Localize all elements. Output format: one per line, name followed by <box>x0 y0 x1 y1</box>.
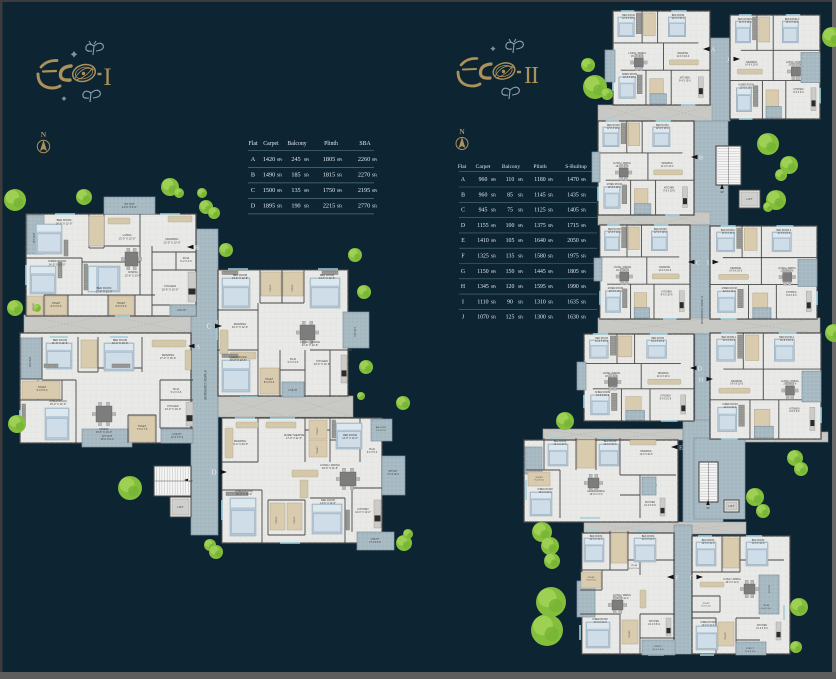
svg-text:9'-6 X 10'-6: 9'-6 X 10'-6 <box>661 295 673 297</box>
svg-text:12'-0" X 10'-0": 12'-0" X 10'-0" <box>165 407 181 411</box>
svg-text:M.BED ROOM: M.BED ROOM <box>592 619 607 621</box>
svg-text:17'-6 X 5'-6: 17'-6 X 5'-6 <box>369 542 381 544</box>
svg-text:UP: UP <box>189 479 193 483</box>
svg-text:10'-6" X 10'-6": 10'-6" X 10'-6" <box>162 287 179 291</box>
svg-text:M.BED ROOM: M.BED ROOM <box>622 74 637 76</box>
svg-text:Carpet: Carpet <box>476 164 491 170</box>
svg-text:BALCONY: BALCONY <box>376 426 387 429</box>
svg-text:185: 185 <box>291 172 300 179</box>
svg-text:7'-0 X 12'-0: 7'-0 X 12'-0 <box>387 474 399 476</box>
svg-text:BED ROOM: BED ROOM <box>702 540 715 542</box>
svg-text:100: 100 <box>506 223 515 229</box>
svg-text:9'-6 X 10'-6: 9'-6 X 10'-6 <box>660 399 672 401</box>
svg-text:TOILET: TOILET <box>294 516 296 524</box>
svg-text:TOILET: TOILET <box>702 603 710 605</box>
svg-text:SFt: SFt <box>304 204 310 209</box>
svg-text:11'-6" X 12'-6": 11'-6" X 12'-6" <box>52 341 68 345</box>
svg-text:N: N <box>41 130 47 139</box>
svg-text:I: I <box>531 63 539 89</box>
svg-text:11'-6 X 5'-6: 11'-6 X 5'-6 <box>745 651 757 653</box>
svg-text:12'-0 X 10'-6: 12'-0 X 10'-6 <box>640 454 654 456</box>
svg-text:M.BED ROOM: M.BED ROOM <box>739 85 754 87</box>
svg-text:12'-0 X 10'-0: 12'-0 X 10'-0 <box>651 341 665 343</box>
svg-text:S-Builtup: S-Builtup <box>565 164 587 170</box>
svg-text:12'-6 X 10'-6: 12'-6 X 10'-6 <box>623 77 637 79</box>
svg-text:85: 85 <box>507 192 513 198</box>
svg-text:BED ROOM: BED ROOM <box>622 15 635 17</box>
svg-text:DRAWING: DRAWING <box>746 61 757 64</box>
svg-text:6'-0 X 5'-6: 6'-0 X 5'-6 <box>629 568 640 570</box>
svg-text:SFt: SFt <box>304 173 310 178</box>
svg-text:H: H <box>699 376 704 383</box>
svg-text:SFt: SFt <box>372 173 378 178</box>
svg-text:16'-0" X 12'-6": 16'-0" X 12'-6" <box>230 358 246 362</box>
svg-text:14'-6" X 12'-6": 14'-6" X 12'-6" <box>232 276 248 280</box>
svg-text:SIT OUT: SIT OUT <box>388 471 398 473</box>
svg-text:1420: 1420 <box>263 156 275 163</box>
svg-text:SFt: SFt <box>372 157 378 162</box>
svg-text:11'-6 X 10'-6: 11'-6 X 10'-6 <box>739 22 752 24</box>
svg-text:10'-6 X 10'-6: 10'-6 X 10'-6 <box>777 233 791 235</box>
svg-text:105: 105 <box>506 238 515 244</box>
svg-text:TOILET: TOILET <box>725 632 727 640</box>
svg-text:11'-0 X 10'-0: 11'-0 X 10'-0 <box>676 56 689 58</box>
svg-text:BED ROOM: BED ROOM <box>595 338 608 340</box>
svg-text:8'-6 X 5'-0: 8'-6 X 5'-0 <box>51 305 62 308</box>
svg-text:Flat: Flat <box>248 141 257 147</box>
svg-text:2270: 2270 <box>358 172 370 179</box>
svg-text:SIT OUT: SIT OUT <box>32 232 36 243</box>
svg-text:BED ROOM: BED ROOM <box>554 441 567 443</box>
svg-text:SFt: SFt <box>337 157 343 162</box>
svg-text:1595: 1595 <box>534 284 546 290</box>
svg-text:Balcony: Balcony <box>502 164 521 170</box>
svg-text:9'-0 X 4'-6: 9'-0 X 4'-6 <box>534 480 544 482</box>
svg-text:12'-6 X 10'-6: 12'-6 X 10'-6 <box>596 395 610 397</box>
svg-text:12'-0" X 12'-0": 12'-0" X 12'-0" <box>164 240 181 244</box>
svg-text:BED ROOM-1: BED ROOM-1 <box>721 230 736 232</box>
svg-text:M.BED ROOM: M.BED ROOM <box>722 288 737 290</box>
svg-text:1300: 1300 <box>534 315 546 321</box>
svg-text:10'-6 X 10'-6: 10'-6 X 10'-6 <box>786 22 800 24</box>
svg-text:12'-0 X 9'-6: 12'-0 X 9'-6 <box>644 505 656 507</box>
svg-text:SIT OUT: SIT OUT <box>28 356 32 367</box>
svg-text:960: 960 <box>479 177 488 183</box>
svg-text:KITCHEN: KITCHEN <box>660 396 670 398</box>
svg-text:8' WIDE CORRIDOR: 8' WIDE CORRIDOR <box>700 296 704 325</box>
svg-text:BED ROOM-1: BED ROOM-1 <box>738 19 753 21</box>
svg-text:12'-0 X 10'-6: 12'-0 X 10'-6 <box>604 444 618 446</box>
svg-text:BED ROOM: BED ROOM <box>642 536 655 538</box>
svg-text:PUJA: PUJA <box>631 564 637 567</box>
svg-text:G: G <box>690 574 695 581</box>
svg-text:10'-6 X 10'-6: 10'-6 X 10'-6 <box>780 340 794 342</box>
svg-text:UP: UP <box>720 191 724 194</box>
svg-text:SFt: SFt <box>277 173 283 178</box>
svg-text:KITCHEN: KITCHEN <box>649 621 659 623</box>
svg-text:135: 135 <box>291 187 300 194</box>
svg-text:SFt: SFt <box>337 173 343 178</box>
svg-text:M.BED ROOM: M.BED ROOM <box>595 392 610 394</box>
svg-text:12'-6 X 10'-6: 12'-6 X 10'-6 <box>609 291 623 293</box>
svg-text:SIT OUT: SIT OUT <box>769 584 771 593</box>
svg-text:DRAWING: DRAWING <box>677 52 688 55</box>
svg-text:A: A <box>251 156 256 163</box>
svg-text:1490: 1490 <box>263 172 275 179</box>
svg-text:BED ROOM-2: BED ROOM-2 <box>785 19 800 21</box>
svg-text:SIT OUT: SIT OUT <box>354 327 357 337</box>
svg-text:BED ROOM: BED ROOM <box>651 338 664 340</box>
svg-text:2050: 2050 <box>567 238 579 244</box>
svg-text:Flat: Flat <box>458 164 467 170</box>
svg-text:12'-0 X 10'-0: 12'-0 X 10'-0 <box>607 128 621 130</box>
svg-text:SFt: SFt <box>372 188 378 193</box>
svg-text:12'-0 X 10'-0: 12'-0 X 10'-0 <box>608 232 622 234</box>
svg-text:DRAWING: DRAWING <box>658 372 669 375</box>
svg-text:8'-6 X 5'-0: 8'-6 X 5'-0 <box>116 305 127 308</box>
svg-text:9'-0 X 5'-6: 9'-0 X 5'-6 <box>586 580 596 582</box>
svg-text:M.BED ROOM: M.BED ROOM <box>607 184 622 186</box>
svg-text:TOILET: TOILET <box>270 284 272 292</box>
svg-text:C: C <box>696 259 700 266</box>
svg-text:1500: 1500 <box>263 187 275 194</box>
svg-text:I: I <box>462 299 464 305</box>
svg-text:UTILITY: UTILITY <box>177 309 187 312</box>
svg-text:1640: 1640 <box>534 238 546 244</box>
svg-text:Plinth: Plinth <box>533 164 546 170</box>
svg-text:1805: 1805 <box>567 269 579 275</box>
svg-text:BED ROOM: BED ROOM <box>604 441 617 443</box>
svg-text:D: D <box>698 365 703 372</box>
svg-text:9'-6 X 9'-6: 9'-6 X 9'-6 <box>786 295 797 297</box>
svg-text:TOILET: TOILET <box>317 427 319 435</box>
svg-text:14'-0" X 12'-0": 14'-0" X 12'-0" <box>56 221 73 225</box>
svg-text:B: B <box>461 192 465 198</box>
svg-text:1375: 1375 <box>534 223 546 229</box>
svg-text:C: C <box>207 323 212 331</box>
svg-text:14'-0" X 12'-0": 14'-0" X 12'-0" <box>49 262 66 266</box>
svg-text:12'-0 X 10'-0: 12'-0 X 10'-0 <box>654 232 668 234</box>
svg-text:UTILITY: UTILITY <box>371 539 380 541</box>
svg-text:190: 190 <box>291 203 300 210</box>
svg-text:1715: 1715 <box>567 223 579 229</box>
svg-text:12'-6 X 10'-6: 12'-6 X 10'-6 <box>724 407 738 409</box>
svg-text:17'-0 X 12'-0: 17'-0 X 12'-0 <box>594 622 608 624</box>
svg-text:Plinth: Plinth <box>324 141 338 147</box>
svg-text:LIFT: LIFT <box>177 505 183 509</box>
svg-text:9'-6 X 9'-6: 9'-6 X 9'-6 <box>793 92 804 94</box>
svg-text:TOILET: TOILET <box>317 446 319 454</box>
svg-text:120: 120 <box>506 284 515 290</box>
svg-text:E: E <box>679 444 683 451</box>
svg-text:26'-0 X 12'-0: 26'-0 X 12'-0 <box>616 598 630 600</box>
svg-text:D: D <box>251 203 256 210</box>
svg-text:1895: 1895 <box>263 203 275 210</box>
svg-text:SFt: SFt <box>277 204 283 209</box>
svg-text:125: 125 <box>506 315 515 321</box>
svg-text:5'-6 X 4'-6: 5'-6 X 4'-6 <box>288 361 299 364</box>
svg-text:1815: 1815 <box>323 172 335 179</box>
svg-text:12'-6 X 12'-0: 12'-6 X 12'-0 <box>702 543 716 545</box>
svg-text:1435: 1435 <box>567 192 579 198</box>
svg-text:TOILET: TOILET <box>587 577 595 579</box>
svg-text:15'-6" X 14'-0": 15'-6" X 14'-0" <box>96 430 112 434</box>
svg-text:110: 110 <box>506 177 515 183</box>
svg-text:I: I <box>707 259 709 266</box>
svg-text:12'-0" X 13'-0": 12'-0" X 13'-0" <box>112 341 128 345</box>
svg-text:SFt: SFt <box>337 188 343 193</box>
svg-text:BED ROOM-1: BED ROOM-1 <box>722 337 737 339</box>
svg-text:PUJA: PUJA <box>763 604 769 607</box>
svg-text:9'-6 X 10'-6: 9'-6 X 10'-6 <box>663 191 675 193</box>
svg-text:BED ROOM-2: BED ROOM-2 <box>777 230 792 232</box>
svg-text:12'-0 X 5'-6: 12'-0 X 5'-6 <box>171 436 184 439</box>
svg-text:8'-0 X 6'-0: 8'-0 X 6'-0 <box>264 382 275 384</box>
svg-text:I: I <box>103 64 111 91</box>
svg-text:TOILET: TOILET <box>535 477 543 479</box>
svg-text:5'-6 X 3'-0: 5'-6 X 3'-0 <box>761 608 772 610</box>
svg-text:1750: 1750 <box>323 187 335 194</box>
svg-text:KITCHEN: KITCHEN <box>793 89 803 91</box>
svg-text:14'-6" X 12'-6": 14'-6" X 12'-6" <box>319 276 335 280</box>
svg-text:10'-0 X 4'-6: 10'-0 X 4'-6 <box>652 649 664 651</box>
svg-text:A: A <box>711 46 716 53</box>
svg-text:11'-6 X 10'-6: 11'-6 X 10'-6 <box>722 233 735 235</box>
svg-text:D: D <box>211 469 216 477</box>
svg-text:UTILITY: UTILITY <box>289 389 298 392</box>
svg-text:21'-6" X 12'-6": 21'-6" X 12'-6" <box>302 343 318 347</box>
svg-text:C: C <box>461 208 465 214</box>
svg-text:E: E <box>461 238 465 244</box>
svg-text:14'-0" X 6'-0": 14'-0" X 6'-0" <box>122 205 137 209</box>
svg-text:2260: 2260 <box>358 156 370 163</box>
svg-text:245: 245 <box>291 156 300 163</box>
svg-text:DRAWING: DRAWING <box>731 380 742 383</box>
svg-text:A: A <box>196 343 201 350</box>
svg-text:16'-0" X 12'-0": 16'-0" X 12'-0" <box>232 325 248 329</box>
svg-text:9'-6 X 10'-6: 9'-6 X 10'-6 <box>679 81 691 83</box>
svg-text:DRAWING: DRAWING <box>730 267 741 270</box>
svg-text:75: 75 <box>507 208 513 214</box>
svg-text:12'-6 X 10'-6: 12'-6 X 10'-6 <box>723 291 737 293</box>
svg-text:2195: 2195 <box>358 187 370 194</box>
svg-text:B: B <box>195 244 200 251</box>
svg-text:LIFT: LIFT <box>746 197 752 201</box>
svg-text:11'-0 X 10'-0: 11'-0 X 10'-0 <box>658 270 671 272</box>
svg-text:945: 945 <box>479 208 488 214</box>
svg-text:KITCHEN: KITCHEN <box>662 292 672 294</box>
svg-text:SFt: SFt <box>337 204 343 209</box>
svg-text:1310: 1310 <box>534 299 546 305</box>
svg-text:SFt: SFt <box>372 204 378 209</box>
svg-text:15'-0" X 12'-0": 15'-0" X 12'-0" <box>50 402 66 406</box>
svg-text:1975: 1975 <box>567 254 579 260</box>
svg-text:TOILET: TOILET <box>265 379 274 381</box>
svg-text:D: D <box>461 223 465 229</box>
svg-text:KITCHEN: KITCHEN <box>786 292 796 294</box>
svg-text:12'-6 X 10'-6: 12'-6 X 10'-6 <box>554 444 568 446</box>
svg-text:1470: 1470 <box>567 177 579 183</box>
svg-text:BED ROOM: BED ROOM <box>672 15 685 17</box>
svg-text:10'-6" X 12'-6": 10'-6" X 12'-6" <box>314 362 330 366</box>
svg-text:34'-0" X 11'-6": 34'-0" X 11'-6" <box>322 466 338 470</box>
svg-text:135: 135 <box>506 254 515 260</box>
svg-text:KITCHEN: KITCHEN <box>664 188 674 190</box>
svg-text:11'-0" X 12'-0": 11'-0" X 12'-0" <box>355 511 371 514</box>
svg-text:BED ROOM: BED ROOM <box>654 229 667 231</box>
svg-text:14'-0 X 12'-0: 14'-0 X 12'-0 <box>642 539 656 541</box>
svg-text:1145: 1145 <box>534 192 545 198</box>
svg-text:1345: 1345 <box>477 284 489 290</box>
svg-text:SFt: SFt <box>277 188 283 193</box>
svg-text:90: 90 <box>507 299 513 305</box>
svg-text:BED ROOM: BED ROOM <box>656 125 669 127</box>
svg-text:14'-6" X 12'-6": 14'-6" X 12'-6" <box>320 502 336 505</box>
svg-text:Balcony: Balcony <box>287 141 306 147</box>
svg-text:10'-0 X 8'-6: 10'-0 X 8'-6 <box>648 624 660 626</box>
svg-text:1125: 1125 <box>534 208 545 214</box>
svg-text:TOILET: TOILET <box>629 630 631 638</box>
svg-text:14'-0 X 10'-0: 14'-0 X 10'-0 <box>730 384 744 386</box>
svg-text:LIVING / DINING: LIVING / DINING <box>778 268 796 270</box>
svg-text:20'-6 X 11'-6: 20'-6 X 11'-6 <box>784 384 797 386</box>
svg-text:12'-0 X 10'-0: 12'-0 X 10'-0 <box>622 18 636 20</box>
svg-text:5'-2 X 4'-6: 5'-2 X 4'-6 <box>180 260 192 263</box>
svg-text:1630: 1630 <box>567 315 579 321</box>
svg-text:LIVING / DINING: LIVING / DINING <box>781 381 799 383</box>
svg-text:UTILITY: UTILITY <box>746 648 755 650</box>
svg-text:KITCHEN: KITCHEN <box>645 502 655 504</box>
svg-text:SBA: SBA <box>359 141 371 147</box>
svg-text:11'-0 X 10'-0: 11'-0 X 10'-0 <box>661 166 674 168</box>
svg-text:16'-2 X 12'-6: 16'-2 X 12'-6 <box>539 492 553 494</box>
svg-text:G: G <box>461 269 465 275</box>
svg-text:15'-0 X 6'-0: 15'-0 X 6'-0 <box>100 437 114 441</box>
svg-text:12'-0 X 12'-0: 12'-0 X 12'-0 <box>590 539 604 541</box>
svg-text:M.BED ROOM: M.BED ROOM <box>537 489 552 491</box>
svg-text:13'-0" X 12'-0": 13'-0" X 12'-0" <box>119 236 136 240</box>
svg-text:M.BED ROOM: M.BED ROOM <box>722 404 737 406</box>
svg-text:26'-6 X 11'-6: 26'-6 X 11'-6 <box>726 582 739 584</box>
svg-text:11'-0 X 9'-0: 11'-0 X 9'-0 <box>756 628 768 630</box>
svg-text:1580: 1580 <box>534 254 546 260</box>
svg-text:12'-0" X 11'-6": 12'-0" X 11'-6" <box>342 437 358 440</box>
svg-text:1635: 1635 <box>567 299 579 305</box>
svg-text:C: C <box>251 187 255 194</box>
svg-text:BED ROOM: BED ROOM <box>607 125 620 127</box>
svg-text:M.BED ROOM: M.BED ROOM <box>608 288 623 290</box>
svg-text:19'-6 X 17'-6: 19'-6 X 17'-6 <box>590 494 604 496</box>
svg-text:B: B <box>251 172 255 179</box>
svg-text:150: 150 <box>506 269 515 275</box>
svg-text:5'-2 X 4'-6: 5'-2 X 4'-6 <box>171 391 182 394</box>
svg-text:1410: 1410 <box>477 238 489 244</box>
svg-text:KITCHEN: KITCHEN <box>789 408 799 410</box>
svg-text:17'-0" X 15'-0": 17'-0" X 15'-0" <box>160 356 176 360</box>
svg-text:DRAWING: DRAWING <box>640 450 651 453</box>
svg-text:11'-6 X 10'-6: 11'-6 X 10'-6 <box>723 340 736 342</box>
svg-text:1405: 1405 <box>567 208 579 214</box>
svg-text:2215: 2215 <box>323 203 335 210</box>
svg-text:KITCHEN: KITCHEN <box>757 625 767 627</box>
svg-text:1990: 1990 <box>567 284 579 290</box>
svg-text:BED ROOM: BED ROOM <box>590 536 603 538</box>
svg-text:16'-0" X 15'-0": 16'-0" X 15'-0" <box>236 492 252 496</box>
svg-text:14'-6 X 12'-6: 14'-6 X 12'-6 <box>702 625 716 627</box>
svg-text:2770: 2770 <box>358 203 370 210</box>
svg-text:LIFT: LIFT <box>728 504 734 508</box>
svg-text:1155: 1155 <box>477 223 488 229</box>
svg-text:DRAWING: DRAWING <box>662 162 673 165</box>
svg-text:UTILITY: UTILITY <box>654 646 663 648</box>
svg-text:11'-6 X 12'-0: 11'-6 X 12'-0 <box>752 543 765 545</box>
svg-text:F: F <box>675 574 679 581</box>
svg-text:SFt: SFt <box>304 188 310 193</box>
svg-text:12'-0 X 10'-0: 12'-0 X 10'-0 <box>672 18 686 20</box>
svg-text:1805: 1805 <box>323 156 335 163</box>
svg-text:12'-0 X 10'-0: 12'-0 X 10'-0 <box>595 341 609 343</box>
svg-text:9'-6 X 4'-6: 9'-6 X 4'-6 <box>701 606 711 608</box>
svg-text:9'-0 X 5'-0: 9'-0 X 5'-0 <box>37 389 48 392</box>
svg-text:14'-0 X 10'-0: 14'-0 X 10'-0 <box>745 65 759 67</box>
svg-text:13'-6" X 13'-6": 13'-6" X 13'-6" <box>125 273 142 277</box>
svg-text:TOILET: TOILET <box>292 284 294 292</box>
svg-text:UP: UP <box>706 507 710 510</box>
svg-text:LIVING / DINING: LIVING / DINING <box>723 579 741 581</box>
svg-text:BED ROOM: BED ROOM <box>752 540 765 542</box>
svg-text:8' WIDE CORRIDOR: 8' WIDE CORRIDOR <box>203 370 207 401</box>
svg-text:TOILET: TOILET <box>276 516 278 524</box>
svg-text:6'-0 X 5'-0: 6'-0 X 5'-0 <box>367 452 378 454</box>
svg-text:B: B <box>699 154 704 161</box>
svg-text:12'-6 X 10'-6: 12'-6 X 10'-6 <box>608 187 622 189</box>
svg-text:14'-0 X 10'-0: 14'-0 X 10'-0 <box>729 271 743 273</box>
svg-text:11'-0 X 10'-0: 11'-0 X 10'-0 <box>657 376 670 378</box>
svg-text:12'-0 X 10'-0: 12'-0 X 10'-0 <box>656 128 670 130</box>
svg-text:SFt: SFt <box>277 157 283 162</box>
svg-text:1070: 1070 <box>477 315 489 321</box>
svg-text:960: 960 <box>479 192 488 198</box>
svg-text:1150: 1150 <box>477 269 488 275</box>
svg-text:PUJA: PUJA <box>369 448 375 451</box>
svg-text:1445: 1445 <box>534 269 546 275</box>
svg-text:BED ROOM: BED ROOM <box>608 229 621 231</box>
svg-text:N: N <box>459 127 465 136</box>
svg-text:DRAWING: DRAWING <box>659 266 670 269</box>
svg-text:M.BED ROOM: M.BED ROOM <box>700 622 715 624</box>
svg-text:Carpet: Carpet <box>263 141 279 147</box>
svg-text:12'-6 X 10'-6: 12'-6 X 10'-6 <box>740 88 754 90</box>
svg-text:6'-0 X 5'-0: 6'-0 X 5'-0 <box>376 430 387 432</box>
svg-text:7'-6 X 7'-6: 7'-6 X 7'-6 <box>137 428 148 431</box>
svg-text:1180: 1180 <box>534 177 545 183</box>
svg-text:13'-0" X 20'-0": 13'-0" X 20'-0" <box>232 442 248 446</box>
svg-text:SFt: SFt <box>304 157 310 162</box>
svg-text:1110: 1110 <box>477 299 488 305</box>
svg-text:BED ROOM-2: BED ROOM-2 <box>779 337 794 339</box>
svg-text:13'-6" X 12'-0": 13'-6" X 12'-0" <box>96 289 113 293</box>
svg-text:1325: 1325 <box>477 254 489 260</box>
svg-text:17'-0" X 11'-6": 17'-0" X 11'-6" <box>286 436 302 440</box>
svg-text:KITCHEN: KITCHEN <box>680 78 690 80</box>
svg-text:9'-6 X 9'-6: 9'-6 X 9'-6 <box>789 411 800 413</box>
